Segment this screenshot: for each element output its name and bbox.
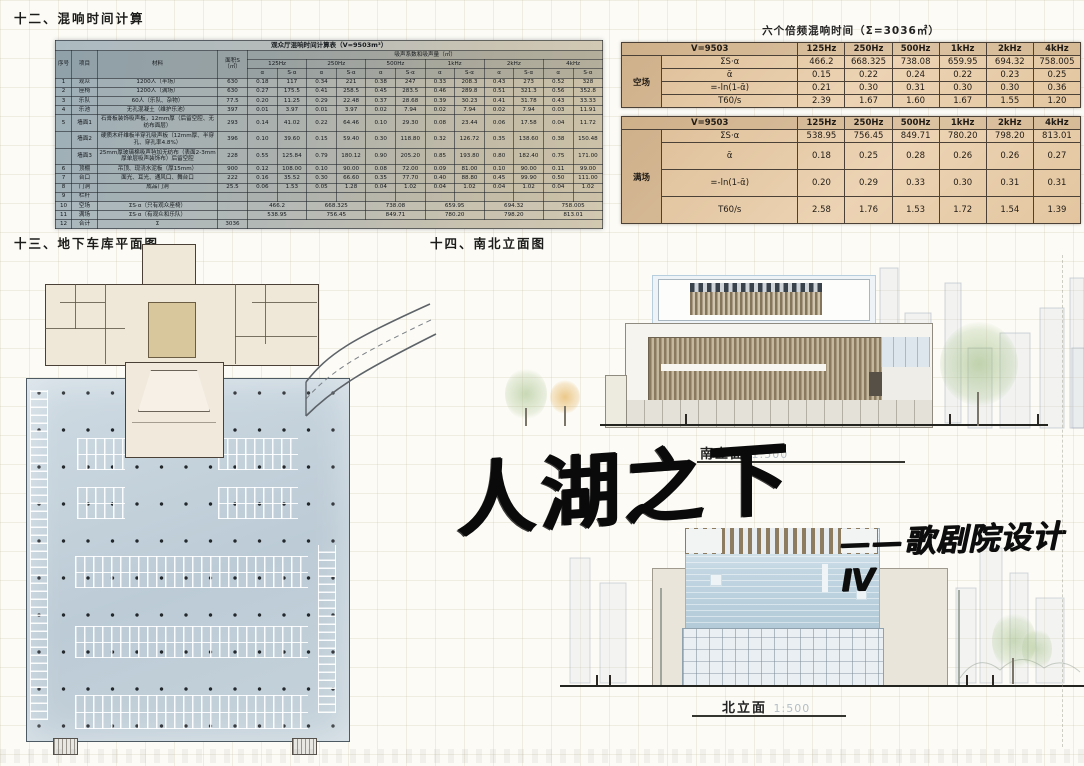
alpha-value: 0.43 — [484, 78, 514, 87]
metric-value: 738.08 — [892, 56, 939, 69]
louver-end-panel — [686, 529, 722, 553]
alpha-header: α — [248, 69, 278, 78]
metric-value: 798.20 — [986, 130, 1033, 143]
alpha-value: 0.56 — [543, 87, 573, 96]
summary-value: 798.20 — [484, 210, 543, 219]
person-figure — [609, 675, 611, 685]
row-no: 4 — [56, 105, 72, 114]
flytower-louvers — [690, 292, 822, 315]
alpha-value: 0.29 — [307, 96, 337, 105]
metric-value: 0.31 — [892, 82, 939, 95]
parking-stalls-row — [75, 695, 308, 729]
salpha-value: 1.28 — [336, 183, 366, 192]
row-item: 乐队 — [72, 96, 98, 105]
alpha-value: 0.08 — [366, 165, 396, 174]
alpha-value: 0.45 — [366, 87, 396, 96]
alpha-value: 0.90 — [366, 148, 396, 165]
north-label-scale: 1:500 — [774, 702, 811, 715]
metric-value: 0.22 — [939, 69, 986, 82]
alpha-value: 0.41 — [307, 87, 337, 96]
garage-plan — [20, 244, 438, 756]
freq-header: 4kHz — [543, 60, 602, 69]
row-area: 293 — [218, 114, 248, 131]
salpha-value: 90.00 — [336, 165, 366, 174]
alpha-value: 0.05 — [307, 183, 337, 192]
salpha-value: 171.00 — [573, 148, 603, 165]
edge-guide-line — [1062, 255, 1063, 747]
salpha-value — [514, 192, 544, 201]
octave-table-full-field: V=9503125Hz250Hz500Hz1kHz2kHz4kHz满场ΣS·α5… — [621, 116, 1081, 224]
salpha-value: 273 — [514, 78, 544, 87]
reverberation-calc-table-grid: 观众厅混响时间计算表（V=9503m³）序号项目材料面积S（㎡）吸声系数和吸声量… — [55, 40, 603, 229]
row-no: 2 — [56, 87, 72, 96]
alpha-value: 0.45 — [484, 174, 514, 183]
row-item: 顶棚 — [72, 165, 98, 174]
row-no: 8 — [56, 183, 72, 192]
alpha-value: 0.11 — [543, 165, 573, 174]
metric-value: 849.71 — [892, 130, 939, 143]
presentation-board: 十二、混响时间计算 十三、地下车库平面图 十四、南北立面图 观众厅混响时间计算表… — [0, 0, 1084, 766]
salpha-value: 138.60 — [514, 131, 544, 148]
row-material: 1200人（半场） — [98, 78, 218, 87]
salpha-value: 3.97 — [277, 105, 307, 114]
window-slit — [661, 364, 826, 371]
salpha-value — [573, 192, 603, 201]
row-area: 77.5 — [218, 96, 248, 105]
summary-value: 780.20 — [425, 210, 484, 219]
salpha-value: 59.40 — [336, 131, 366, 148]
octave-table-empty-field: V=9503125Hz250Hz500Hz1kHz2kHz4kHz空场ΣS·α4… — [621, 42, 1081, 108]
alpha-value: 0.80 — [484, 148, 514, 165]
metric-value: 0.26 — [939, 143, 986, 170]
alpha-value: 0.04 — [366, 183, 396, 192]
row-area: 228 — [218, 148, 248, 165]
salpha-value: 1.02 — [455, 183, 485, 192]
alpha-value: 0.55 — [248, 148, 278, 165]
metric-value: 2.58 — [798, 197, 845, 224]
alpha-value — [543, 192, 573, 201]
metric-value: 0.27 — [1033, 143, 1080, 170]
main-facade — [625, 323, 933, 428]
salpha-header: S·α — [395, 69, 425, 78]
salpha-value: 23.44 — [455, 114, 485, 131]
salpha-value: 64.46 — [336, 114, 366, 131]
dark-window — [869, 372, 882, 396]
freq-header: 2kHz — [986, 117, 1033, 130]
salpha-value: 321.3 — [514, 87, 544, 96]
alpha-value — [248, 192, 278, 201]
wall-line — [265, 284, 266, 344]
tree-trunk — [564, 406, 566, 426]
salpha-value: 221 — [336, 78, 366, 87]
salpha-value: 117 — [277, 78, 307, 87]
row-material: 石膏板装饰吸声板，12mm厚（后留空腔、无纺布面层） — [98, 114, 218, 131]
row-item: 栏杆 — [72, 192, 98, 201]
freq-header: 4kHz — [1033, 117, 1080, 130]
metric-value: 0.18 — [798, 143, 845, 170]
metric-header: ΣS·α — [662, 56, 798, 69]
person-figure — [1037, 414, 1039, 424]
alpha-value: 0.35 — [484, 131, 514, 148]
glass-detail — [822, 564, 828, 592]
salpha-value: 39.60 — [277, 131, 307, 148]
salpha-value: 126.72 — [455, 131, 485, 148]
flytower-clerestory — [690, 283, 822, 292]
row-item: 乐池 — [72, 105, 98, 114]
absorption-band-header: 吸声系数和吸声量（㎡） — [248, 51, 603, 60]
freq-header: 2kHz — [986, 43, 1033, 56]
summary-value: 813.01 — [543, 210, 602, 219]
salpha-header: S·α — [455, 69, 485, 78]
alpha-value: 0.04 — [543, 183, 573, 192]
tree-trunk — [1012, 658, 1014, 684]
person-figure — [992, 675, 994, 685]
salpha-value: 7.94 — [455, 105, 485, 114]
alpha-value: 0.38 — [543, 131, 573, 148]
person-figure — [949, 414, 951, 424]
salpha-value — [277, 192, 307, 201]
freq-header: 500Hz — [892, 43, 939, 56]
row-area: 3036 — [218, 219, 248, 228]
alpha-value: 0.02 — [366, 105, 396, 114]
tree-canopy — [1022, 628, 1052, 670]
salpha-value: 111.00 — [573, 174, 603, 183]
salpha-value: 108.00 — [277, 165, 307, 174]
north-label-text: 北立面 — [722, 701, 767, 716]
salpha-value: 328 — [573, 78, 603, 87]
metric-header: T60/s — [662, 95, 798, 108]
row-area — [218, 210, 248, 219]
row-no: 1 — [56, 78, 72, 87]
summary-value: 659.95 — [425, 201, 484, 210]
north-label-underline — [692, 715, 846, 717]
summary-value: 738.08 — [366, 201, 425, 210]
salpha-value: 205.20 — [395, 148, 425, 165]
salpha-value — [395, 192, 425, 201]
salpha-value: 289.8 — [455, 87, 485, 96]
ground-line — [560, 685, 1084, 687]
metric-value: 0.30 — [986, 82, 1033, 95]
row-no: 11 — [56, 210, 72, 219]
row-material: 面光、耳光、通风口、舞台口 — [98, 174, 218, 183]
alpha-value: 0.18 — [248, 78, 278, 87]
metric-value: 1.72 — [939, 197, 986, 224]
ramp-road — [298, 282, 438, 432]
salpha-value: 88.80 — [455, 174, 485, 183]
summary-value: 756.45 — [307, 210, 366, 219]
row-material: 无孔混凝土（维护乐池） — [98, 105, 218, 114]
salpha-value: 180.12 — [336, 148, 366, 165]
alpha-value: 0.01 — [307, 105, 337, 114]
column-header: 面积S（㎡） — [218, 51, 248, 78]
alpha-value: 0.85 — [425, 148, 455, 165]
alpha-value: 0.37 — [366, 96, 396, 105]
salpha-value: 81.00 — [455, 165, 485, 174]
alpha-value: 0.39 — [425, 96, 455, 105]
alpha-value: 0.04 — [543, 114, 573, 131]
alpha-value: 0.52 — [543, 78, 573, 87]
alpha-value: 0.20 — [248, 96, 278, 105]
metric-value: 0.15 — [798, 69, 845, 82]
metric-value: 0.33 — [892, 170, 939, 197]
row-item: 满场 — [72, 210, 98, 219]
salpha-value: 7.94 — [395, 105, 425, 114]
condition-header: 空场 — [622, 56, 662, 108]
salpha-value: 66.60 — [336, 174, 366, 183]
column-header: 项目 — [72, 51, 98, 78]
volume-header: V=9503 — [622, 117, 798, 130]
metric-value: 0.23 — [986, 69, 1033, 82]
metric-value: 1.60 — [892, 95, 939, 108]
parking-stalls-column — [318, 545, 336, 713]
salpha-value: 1.53 — [277, 183, 307, 192]
metric-value: 1.54 — [986, 197, 1033, 224]
metric-value: 2.39 — [798, 95, 845, 108]
freq-header: 250Hz — [845, 43, 892, 56]
freq-header: 1kHz — [939, 117, 986, 130]
freq-header: 500Hz — [366, 60, 425, 69]
salpha-value — [455, 192, 485, 201]
reverberation-calc-table: 观众厅混响时间计算表（V=9503m³）序号项目材料面积S（㎡）吸声系数和吸声量… — [55, 40, 603, 229]
alpha-value: 0.10 — [248, 131, 278, 148]
alpha-value: 0.30 — [307, 174, 337, 183]
project-sub-title: ——歌剧院设计Ⅳ — [839, 510, 1084, 599]
metric-header: =-ln(1-ᾱ) — [662, 170, 798, 197]
alpha-value: 0.14 — [248, 114, 278, 131]
row-no: 9 — [56, 192, 72, 201]
row-area: 25.5 — [218, 183, 248, 192]
metric-value: 0.22 — [845, 69, 892, 82]
alpha-value: 0.10 — [307, 165, 337, 174]
table-gap — [621, 108, 1081, 116]
alpha-value: 0.41 — [484, 96, 514, 105]
metric-value: 0.20 — [798, 170, 845, 197]
alpha-header: α — [366, 69, 396, 78]
metric-value: 538.95 — [798, 130, 845, 143]
row-item: 空场 — [72, 201, 98, 210]
metric-value: 0.30 — [845, 82, 892, 95]
alpha-value: 0.30 — [366, 131, 396, 148]
row-area: 222 — [218, 174, 248, 183]
alpha-value — [366, 192, 396, 201]
row-no — [56, 148, 72, 165]
freq-header: 125Hz — [248, 60, 307, 69]
alpha-value — [484, 192, 514, 201]
salpha-value: 17.58 — [514, 114, 544, 131]
alpha-value: 0.34 — [307, 78, 337, 87]
row-no: 5 — [56, 114, 72, 131]
salpha-value: 22.48 — [336, 96, 366, 105]
salpha-value: 35.52 — [277, 174, 307, 183]
person-figure — [685, 414, 687, 424]
salpha-header: S·α — [336, 69, 366, 78]
wall-line — [45, 328, 125, 329]
salpha-value: 41.02 — [277, 114, 307, 131]
salpha-value: 99.90 — [514, 174, 544, 183]
row-material: 硬质木纤维板半穿孔吸声板（12mm厚、半穿孔、穿孔率4.8%） — [98, 131, 218, 148]
alpha-value: 0.50 — [543, 174, 573, 183]
metric-value: 0.25 — [845, 143, 892, 170]
metric-value: 0.28 — [892, 143, 939, 170]
row-no: 6 — [56, 165, 72, 174]
metric-value: 0.29 — [845, 170, 892, 197]
row-material: 吊顶、现浇水泥板（厚15mm） — [98, 165, 218, 174]
base-colonnade — [626, 400, 932, 427]
parking-stalls-row — [75, 556, 308, 588]
row-material: 1200人（满场） — [98, 87, 218, 96]
metric-header: ᾱ — [662, 143, 798, 170]
alpha-value: 0.46 — [425, 87, 455, 96]
salpha-value: 118.80 — [395, 131, 425, 148]
salpha-value: 1.02 — [573, 183, 603, 192]
parking-stalls-row — [77, 438, 125, 470]
metric-value: 1.20 — [1033, 95, 1080, 108]
row-material: 60人（乐队、杂物） — [98, 96, 218, 105]
parking-stalls-row — [218, 487, 298, 519]
metric-value: 813.01 — [1033, 130, 1080, 143]
metric-value: 0.26 — [986, 143, 1033, 170]
salpha-value: 33.33 — [573, 96, 603, 105]
freq-header: 125Hz — [798, 117, 845, 130]
alpha-value — [425, 192, 455, 201]
column-header: 材料 — [98, 51, 218, 78]
row-item: 座椅 — [72, 87, 98, 96]
freq-header: 1kHz — [425, 60, 484, 69]
ground-line — [600, 424, 1048, 426]
person-figure — [966, 675, 968, 685]
row-material — [98, 192, 218, 201]
salpha-value: 11.72 — [573, 114, 603, 131]
salpha-value: 150.48 — [573, 131, 603, 148]
summary-value: 466.2 — [248, 201, 307, 210]
row-item: 墙面1 — [72, 114, 98, 131]
row-area: 396 — [218, 131, 248, 148]
salpha-value — [336, 192, 366, 201]
alpha-value: 0.51 — [484, 87, 514, 96]
freq-header: 250Hz — [307, 60, 366, 69]
salpha-header: S·α — [573, 69, 603, 78]
parking-stalls-row — [77, 487, 125, 519]
wall-line — [105, 284, 106, 364]
metric-value: 756.45 — [845, 130, 892, 143]
summary-value: 668.325 — [307, 201, 366, 210]
alpha-value: 0.10 — [366, 114, 396, 131]
metric-value: 0.21 — [798, 82, 845, 95]
alpha-value: 0.79 — [307, 148, 337, 165]
summary-value: 849.71 — [366, 210, 425, 219]
metric-value: 780.20 — [939, 130, 986, 143]
wall-line — [60, 302, 105, 303]
metric-value: 0.25 — [1033, 69, 1080, 82]
alpha-value: 0.04 — [484, 183, 514, 192]
alpha-header: α — [425, 69, 455, 78]
metric-header: T60/s — [662, 197, 798, 224]
parking-stalls-row — [218, 438, 298, 470]
column-header: 序号 — [56, 51, 72, 78]
row-item: 观众 — [72, 78, 98, 87]
salpha-value: 77.70 — [395, 174, 425, 183]
alpha-header: α — [543, 69, 573, 78]
row-material: 成品门洞 — [98, 183, 218, 192]
row-area — [218, 192, 248, 201]
alpha-value: 0.08 — [425, 114, 455, 131]
section-14-title: 十四、南北立面图 — [430, 233, 546, 252]
salpha-value: 352.8 — [573, 87, 603, 96]
salpha-value: 3.97 — [336, 105, 366, 114]
alpha-value: 0.15 — [307, 131, 337, 148]
light-pole — [660, 588, 662, 685]
alpha-value: 0.22 — [307, 114, 337, 131]
salpha-value: 90.00 — [514, 165, 544, 174]
glazing-upper-right — [881, 337, 930, 367]
metric-value: 1.76 — [845, 197, 892, 224]
salpha-value: 258.5 — [336, 87, 366, 96]
curtain-wall — [682, 628, 884, 687]
light-pole — [958, 590, 960, 685]
alpha-header: α — [307, 69, 337, 78]
parking-stalls-row — [75, 626, 308, 658]
freq-header: 125Hz — [798, 43, 845, 56]
person-figure — [596, 675, 598, 685]
summary-value: 694.32 — [484, 201, 543, 210]
alpha-value: 0.02 — [425, 105, 455, 114]
metric-value: 0.24 — [892, 69, 939, 82]
metric-value: 466.2 — [798, 56, 845, 69]
metric-value: 0.30 — [939, 170, 986, 197]
project-main-title: 人湖之下 — [456, 438, 791, 542]
salpha-value: 29.30 — [395, 114, 425, 131]
row-no: 12 — [56, 219, 72, 228]
north-elevation-label: 北立面 1:500 — [722, 697, 810, 716]
salpha-header: S·α — [277, 69, 307, 78]
salpha-value: 11.91 — [573, 105, 603, 114]
glass-detail — [710, 574, 722, 586]
tree-trunk — [977, 392, 979, 426]
metric-value: 1.67 — [939, 95, 986, 108]
row-material: ΣS·α（有观众和乐队） — [98, 210, 218, 219]
salpha-value: 283.5 — [395, 87, 425, 96]
metric-value: 0.31 — [986, 170, 1033, 197]
salpha-value: 208.3 — [455, 78, 485, 87]
summary-value: 758.005 — [543, 201, 602, 210]
metric-value: 0.30 — [939, 82, 986, 95]
salpha-value: 31.78 — [514, 96, 544, 105]
row-item: 门洞 — [72, 183, 98, 192]
alpha-value: 0.40 — [425, 174, 455, 183]
alpha-value — [307, 192, 337, 201]
alpha-value: 0.32 — [425, 131, 455, 148]
metric-value: 659.95 — [939, 56, 986, 69]
alpha-value: 0.16 — [248, 174, 278, 183]
metric-value: 1.53 — [892, 197, 939, 224]
metric-value: 1.39 — [1033, 197, 1080, 224]
salpha-value: 1.02 — [514, 183, 544, 192]
wall-line — [132, 422, 216, 423]
alpha-value: 0.03 — [543, 105, 573, 114]
octave-tables-title: 六个倍频混响时间（Σ=3036㎡） — [621, 23, 1081, 38]
row-material: ΣS·α（只有观众座椅） — [98, 201, 218, 210]
row-item: 墙面2 — [72, 131, 98, 148]
metric-value: 758.005 — [1033, 56, 1080, 69]
big-table-title: 观众厅混响时间计算表（V=9503m³） — [56, 41, 603, 51]
summary-value: 538.95 — [248, 210, 307, 219]
salpha-value: 125.84 — [277, 148, 307, 165]
alpha-value: 0.27 — [248, 87, 278, 96]
total-blank — [248, 219, 603, 228]
row-item: 墙面3 — [72, 148, 98, 165]
alpha-value: 0.09 — [425, 165, 455, 174]
salpha-value: 247 — [395, 78, 425, 87]
